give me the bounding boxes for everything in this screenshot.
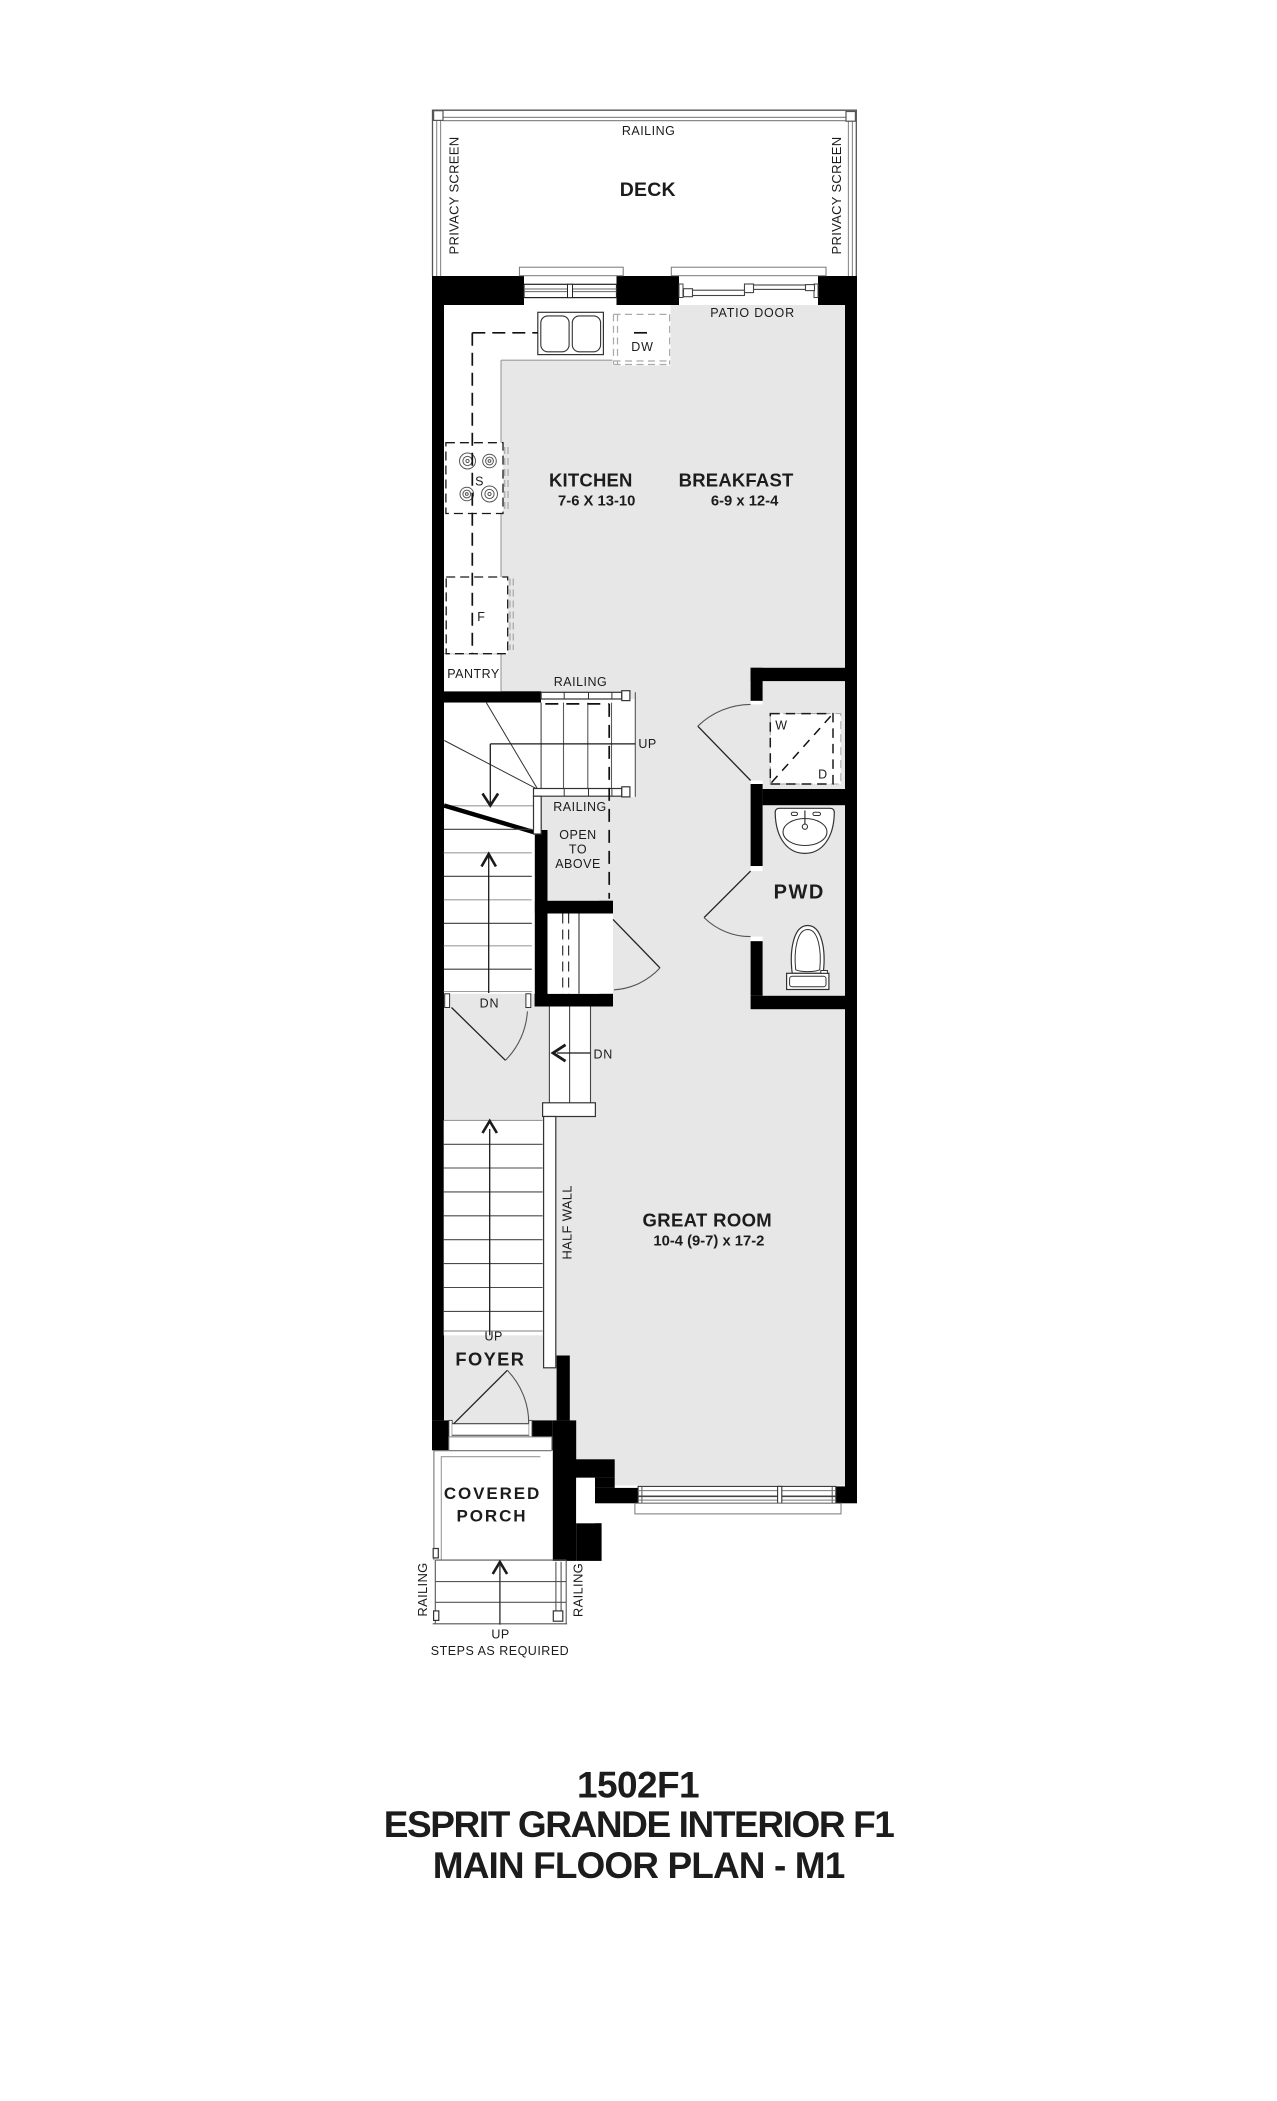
svg-text:UP: UP [638, 737, 656, 751]
svg-text:GREAT ROOM: GREAT ROOM [643, 1209, 773, 1230]
svg-text:DECK: DECK [620, 179, 676, 201]
svg-text:PRIVACY SCREEN: PRIVACY SCREEN [446, 137, 461, 255]
svg-text:RAILING: RAILING [570, 1563, 585, 1617]
svg-text:UP: UP [485, 1330, 503, 1344]
svg-text:ABOVE: ABOVE [555, 857, 601, 871]
svg-text:RAILING: RAILING [622, 124, 676, 138]
svg-text:FOYER: FOYER [455, 1348, 525, 1369]
svg-text:MAIN FLOOR PLAN - M1: MAIN FLOOR PLAN - M1 [433, 1845, 845, 1886]
svg-text:7-6 X 13-10: 7-6 X 13-10 [558, 493, 635, 509]
svg-text:D: D [818, 768, 828, 782]
svg-text:DW: DW [631, 340, 653, 354]
svg-text:10-4 (9-7) x 17-2: 10-4 (9-7) x 17-2 [653, 1234, 764, 1250]
svg-text:PORCH: PORCH [457, 1506, 528, 1525]
svg-text:RAILING: RAILING [415, 1562, 430, 1616]
svg-text:F: F [477, 610, 485, 624]
svg-text:COVERED: COVERED [444, 1484, 541, 1503]
svg-text:PWD: PWD [774, 882, 825, 904]
svg-text:UP: UP [491, 1627, 509, 1641]
svg-text:OPEN: OPEN [559, 828, 596, 842]
svg-text:W: W [775, 718, 788, 732]
svg-text:HALF WALL: HALF WALL [560, 1185, 575, 1259]
svg-text:PATIO DOOR: PATIO DOOR [710, 306, 795, 320]
svg-text:PANTRY: PANTRY [447, 667, 500, 681]
svg-text:TO: TO [569, 843, 587, 857]
svg-text:RAILING: RAILING [553, 800, 607, 814]
svg-text:RAILING: RAILING [554, 675, 608, 689]
svg-text:BREAKFAST: BREAKFAST [679, 469, 794, 490]
svg-text:S: S [475, 475, 484, 489]
svg-text:KITCHEN: KITCHEN [549, 469, 633, 490]
svg-text:ESPRIT GRANDE INTERIOR F1: ESPRIT GRANDE INTERIOR F1 [384, 1804, 895, 1845]
svg-text:PRIVACY SCREEN: PRIVACY SCREEN [829, 137, 844, 255]
svg-text:DN: DN [480, 997, 500, 1011]
svg-text:6-9 x 12-4: 6-9 x 12-4 [711, 493, 779, 509]
svg-text:STEPS AS REQUIRED: STEPS AS REQUIRED [431, 1644, 569, 1658]
svg-text:DN: DN [593, 1048, 613, 1062]
svg-text:1502F1: 1502F1 [577, 1765, 699, 1806]
